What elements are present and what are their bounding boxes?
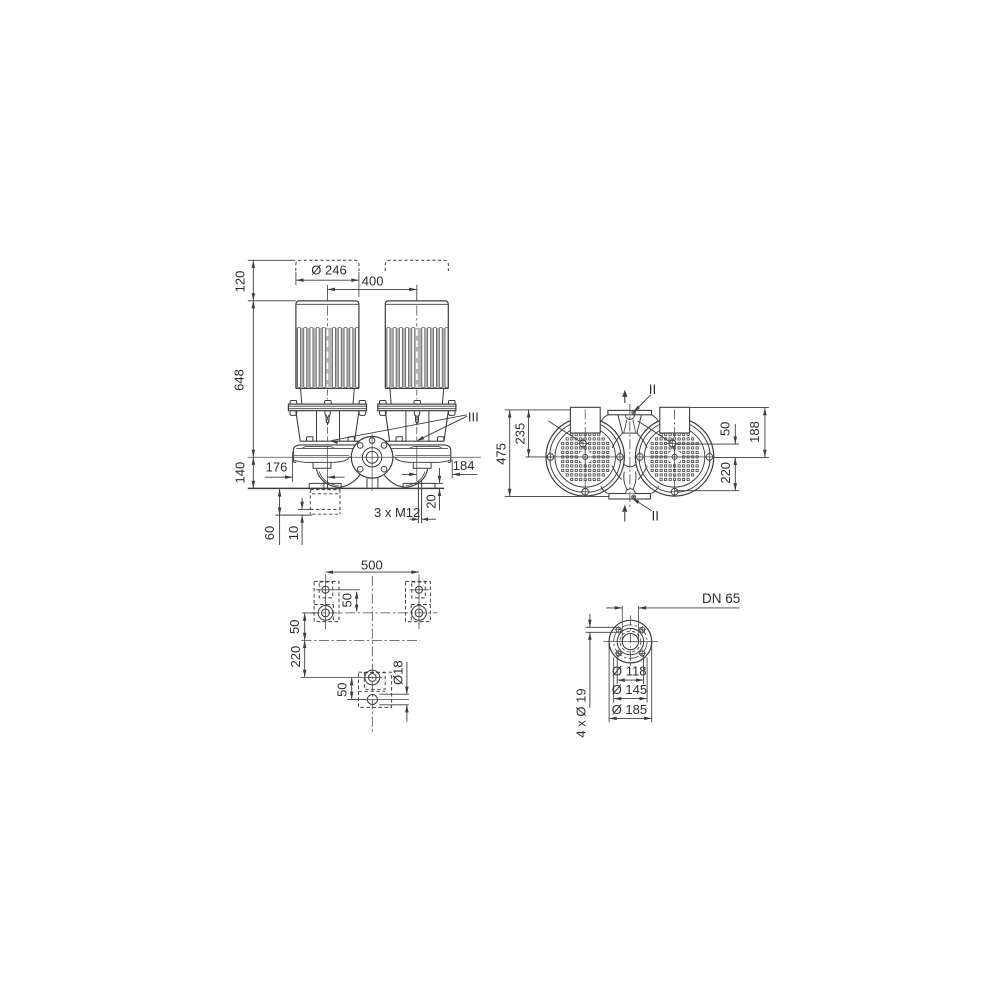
svg-text:10: 10 (286, 526, 301, 540)
svg-text:475: 475 (493, 443, 508, 465)
svg-text:II: II (649, 382, 657, 397)
svg-text:235: 235 (513, 423, 528, 445)
svg-text:220: 220 (718, 462, 733, 484)
svg-text:Ø 145: Ø 145 (612, 682, 647, 697)
svg-text:184: 184 (453, 458, 475, 473)
svg-text:Ø 118: Ø 118 (612, 664, 646, 679)
svg-text:Ø18: Ø18 (390, 660, 405, 685)
svg-text:4 x Ø 19: 4 x Ø 19 (573, 688, 588, 737)
svg-text:3 x M12: 3 x M12 (374, 505, 420, 520)
svg-text:60: 60 (262, 526, 277, 540)
svg-text:220: 220 (288, 646, 303, 668)
svg-text:DN 65: DN 65 (702, 591, 740, 606)
svg-text:120: 120 (232, 271, 247, 293)
svg-text:50: 50 (335, 682, 350, 696)
svg-text:III: III (468, 410, 479, 425)
svg-text:50: 50 (287, 619, 302, 633)
svg-text:400: 400 (362, 274, 384, 289)
svg-text:20: 20 (423, 494, 438, 508)
svg-text:Ø 185: Ø 185 (612, 702, 647, 717)
svg-text:648: 648 (232, 369, 247, 391)
svg-text:176: 176 (266, 459, 288, 474)
svg-text:50: 50 (340, 593, 355, 607)
svg-text:50: 50 (718, 422, 733, 436)
svg-text:140: 140 (233, 462, 248, 484)
svg-text:500: 500 (361, 557, 383, 572)
svg-text:Ø 246: Ø 246 (311, 263, 346, 278)
svg-text:188: 188 (747, 421, 762, 443)
svg-text:II: II (652, 509, 660, 524)
